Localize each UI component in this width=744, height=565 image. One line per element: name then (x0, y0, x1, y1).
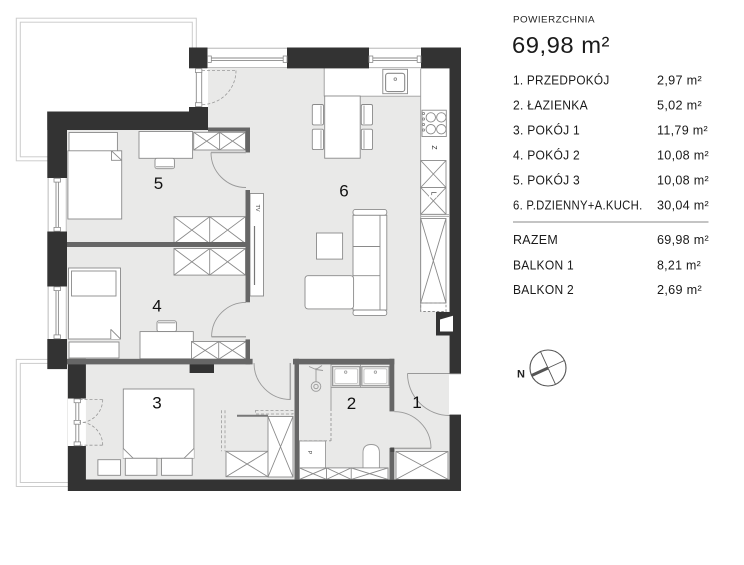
svg-text:L: L (430, 192, 437, 196)
svg-text:Z: Z (430, 145, 437, 150)
svg-text:10,08 m²: 10,08 m² (657, 173, 709, 188)
svg-text:3. POKÓJ 1: 3. POKÓJ 1 (513, 123, 580, 138)
svg-text:10,08 m²: 10,08 m² (657, 148, 709, 163)
svg-text:30,04 m²: 30,04 m² (657, 198, 709, 213)
svg-text:POWIERZCHNIA: POWIERZCHNIA (513, 15, 595, 26)
svg-text:6: 6 (339, 182, 348, 201)
svg-text:2. ŁAZIENKA: 2. ŁAZIENKA (513, 98, 588, 113)
svg-text:TV: TV (254, 204, 260, 211)
svg-text:N: N (517, 369, 525, 381)
svg-text:69,98 m²: 69,98 m² (657, 232, 709, 247)
svg-text:11,79 m²: 11,79 m² (657, 123, 708, 138)
svg-text:5: 5 (154, 174, 163, 193)
svg-text:4: 4 (152, 297, 161, 316)
svg-text:2,97 m²: 2,97 m² (657, 73, 702, 88)
svg-text:2,69 m²: 2,69 m² (657, 282, 702, 297)
svg-text:69,98 m²: 69,98 m² (512, 32, 610, 58)
svg-text:BALKON 1: BALKON 1 (513, 258, 574, 273)
svg-text:5. POKÓJ 3: 5. POKÓJ 3 (513, 173, 580, 188)
svg-text:5,02 m²: 5,02 m² (657, 98, 702, 113)
svg-text:1: 1 (412, 393, 421, 412)
svg-text:3: 3 (152, 394, 161, 413)
svg-text:2: 2 (347, 394, 356, 413)
svg-text:4. POKÓJ 2: 4. POKÓJ 2 (513, 148, 580, 163)
svg-text:6. P.DZIENNY+A.KUCH.: 6. P.DZIENNY+A.KUCH. (513, 198, 643, 213)
svg-text:RAZEM: RAZEM (513, 232, 558, 247)
svg-text:1. PRZEDPOKÓJ: 1. PRZEDPOKÓJ (513, 73, 610, 88)
svg-text:8,21 m²: 8,21 m² (657, 258, 701, 273)
svg-text:P: P (306, 451, 312, 455)
svg-text:BALKON 2: BALKON 2 (513, 282, 574, 297)
